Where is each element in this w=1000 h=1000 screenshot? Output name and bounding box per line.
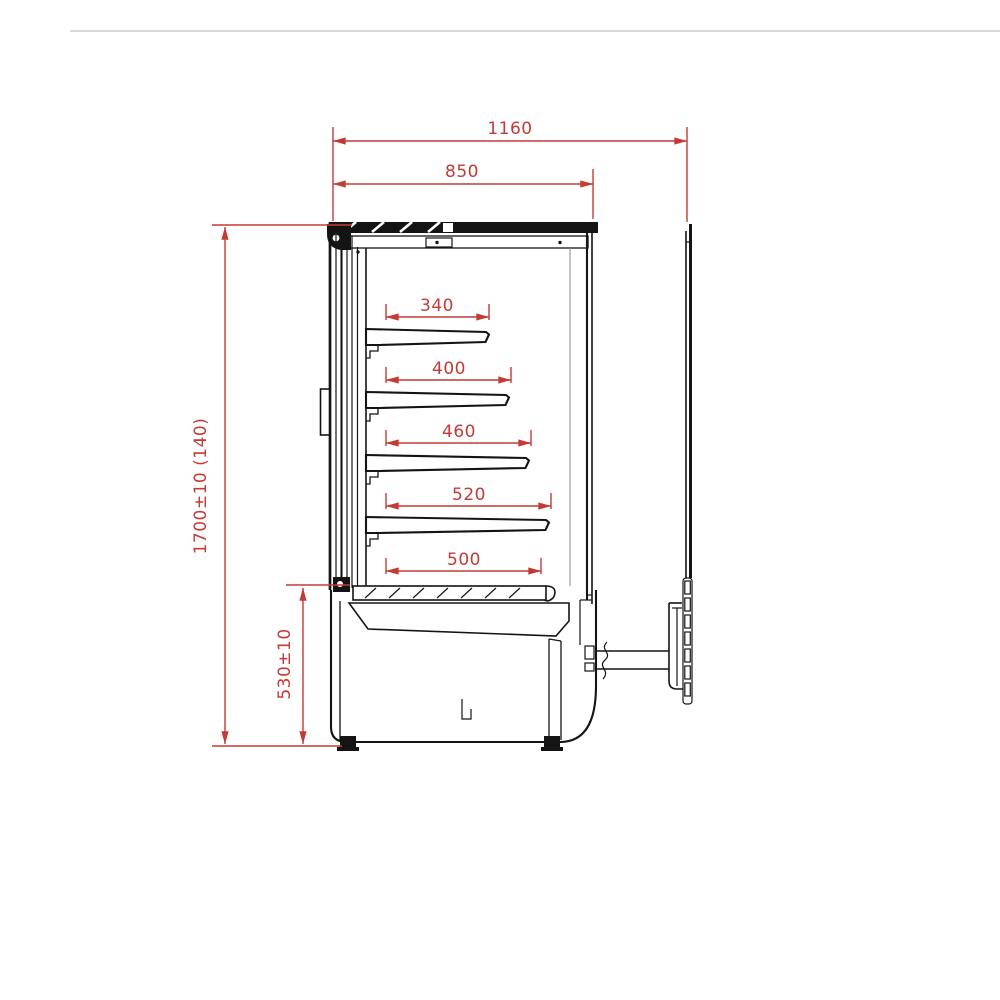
strip-segment xyxy=(685,632,691,645)
dim-label: 1700±10 (140) xyxy=(191,418,211,555)
strip-segment xyxy=(685,683,691,696)
dim-label: 1160 xyxy=(487,119,532,139)
dim-shelf-4-520: 520 xyxy=(386,485,551,509)
break-mark xyxy=(602,642,607,679)
panel-bracket-body xyxy=(669,603,683,689)
dimensions: 1160 850 1700±10 (140) 530±10 340 xyxy=(191,119,687,746)
drain-basin xyxy=(349,603,569,636)
page: 1160 850 1700±10 (140) 530±10 340 xyxy=(0,0,1000,1000)
screw-dot xyxy=(435,241,438,244)
shelf-2-bracket xyxy=(366,408,378,421)
dim-label: 520 xyxy=(452,485,486,505)
foot-left-pad xyxy=(337,747,359,751)
strip-segment xyxy=(685,615,691,628)
arm-mount-tab xyxy=(585,646,594,659)
cabinet-top-canopy xyxy=(327,222,598,254)
dim-overall-height-1700: 1700±10 (140) xyxy=(191,225,352,746)
dim-label: 460 xyxy=(442,422,476,442)
shelf-1 xyxy=(366,329,489,345)
front-glass-panel xyxy=(669,224,692,704)
screw-dot xyxy=(558,241,561,244)
shelf-1-bracket xyxy=(366,345,378,358)
rear-wall xyxy=(321,222,367,592)
door-handle xyxy=(321,389,330,435)
dim-base-height-530: 530±10 xyxy=(275,585,350,744)
shelf-4 xyxy=(366,517,549,533)
front-frame xyxy=(570,222,594,671)
deck-band xyxy=(353,586,546,600)
dim-label: 340 xyxy=(420,296,454,316)
arm-mount-tab xyxy=(585,663,594,671)
shelf-2 xyxy=(366,392,509,408)
foot-right-pad xyxy=(541,747,563,751)
technical-drawing: 1160 850 1700±10 (140) 530±10 340 xyxy=(0,0,1000,1000)
bottom-deck xyxy=(349,586,569,636)
base-column-top xyxy=(549,639,561,641)
cabinet-body xyxy=(321,222,693,751)
strip-segment xyxy=(685,581,691,594)
top-panel xyxy=(331,222,598,233)
shelf-4-bracket xyxy=(366,533,378,546)
hinge-pin xyxy=(337,581,343,587)
dim-deck-500: 500 xyxy=(386,550,541,574)
support-arm xyxy=(596,642,669,679)
dim-label: 500 xyxy=(447,550,481,570)
dim-overall-width-1160: 1160 xyxy=(333,119,687,222)
shelf-3-bracket xyxy=(366,471,378,484)
dim-shelf-3-460: 460 xyxy=(386,422,531,446)
foot-right xyxy=(544,736,560,748)
dim-label: 850 xyxy=(445,162,479,182)
light-cover-strip xyxy=(350,236,588,248)
dim-body-width-850: 850 xyxy=(333,162,593,219)
base-clip-detail xyxy=(462,699,471,719)
strip-segment xyxy=(685,598,691,611)
dim-shelf-2-400: 400 xyxy=(386,359,511,383)
dim-shelf-1-340: 340 xyxy=(386,296,489,320)
strip-segment xyxy=(685,666,691,679)
dim-label: 530±10 xyxy=(275,628,295,699)
top-panel-joint xyxy=(443,223,453,232)
dim-label: 400 xyxy=(432,359,466,379)
lamp-fixture xyxy=(426,238,452,247)
shelf-3 xyxy=(366,455,529,471)
strip-segment xyxy=(685,649,691,662)
foot-left xyxy=(340,736,356,748)
